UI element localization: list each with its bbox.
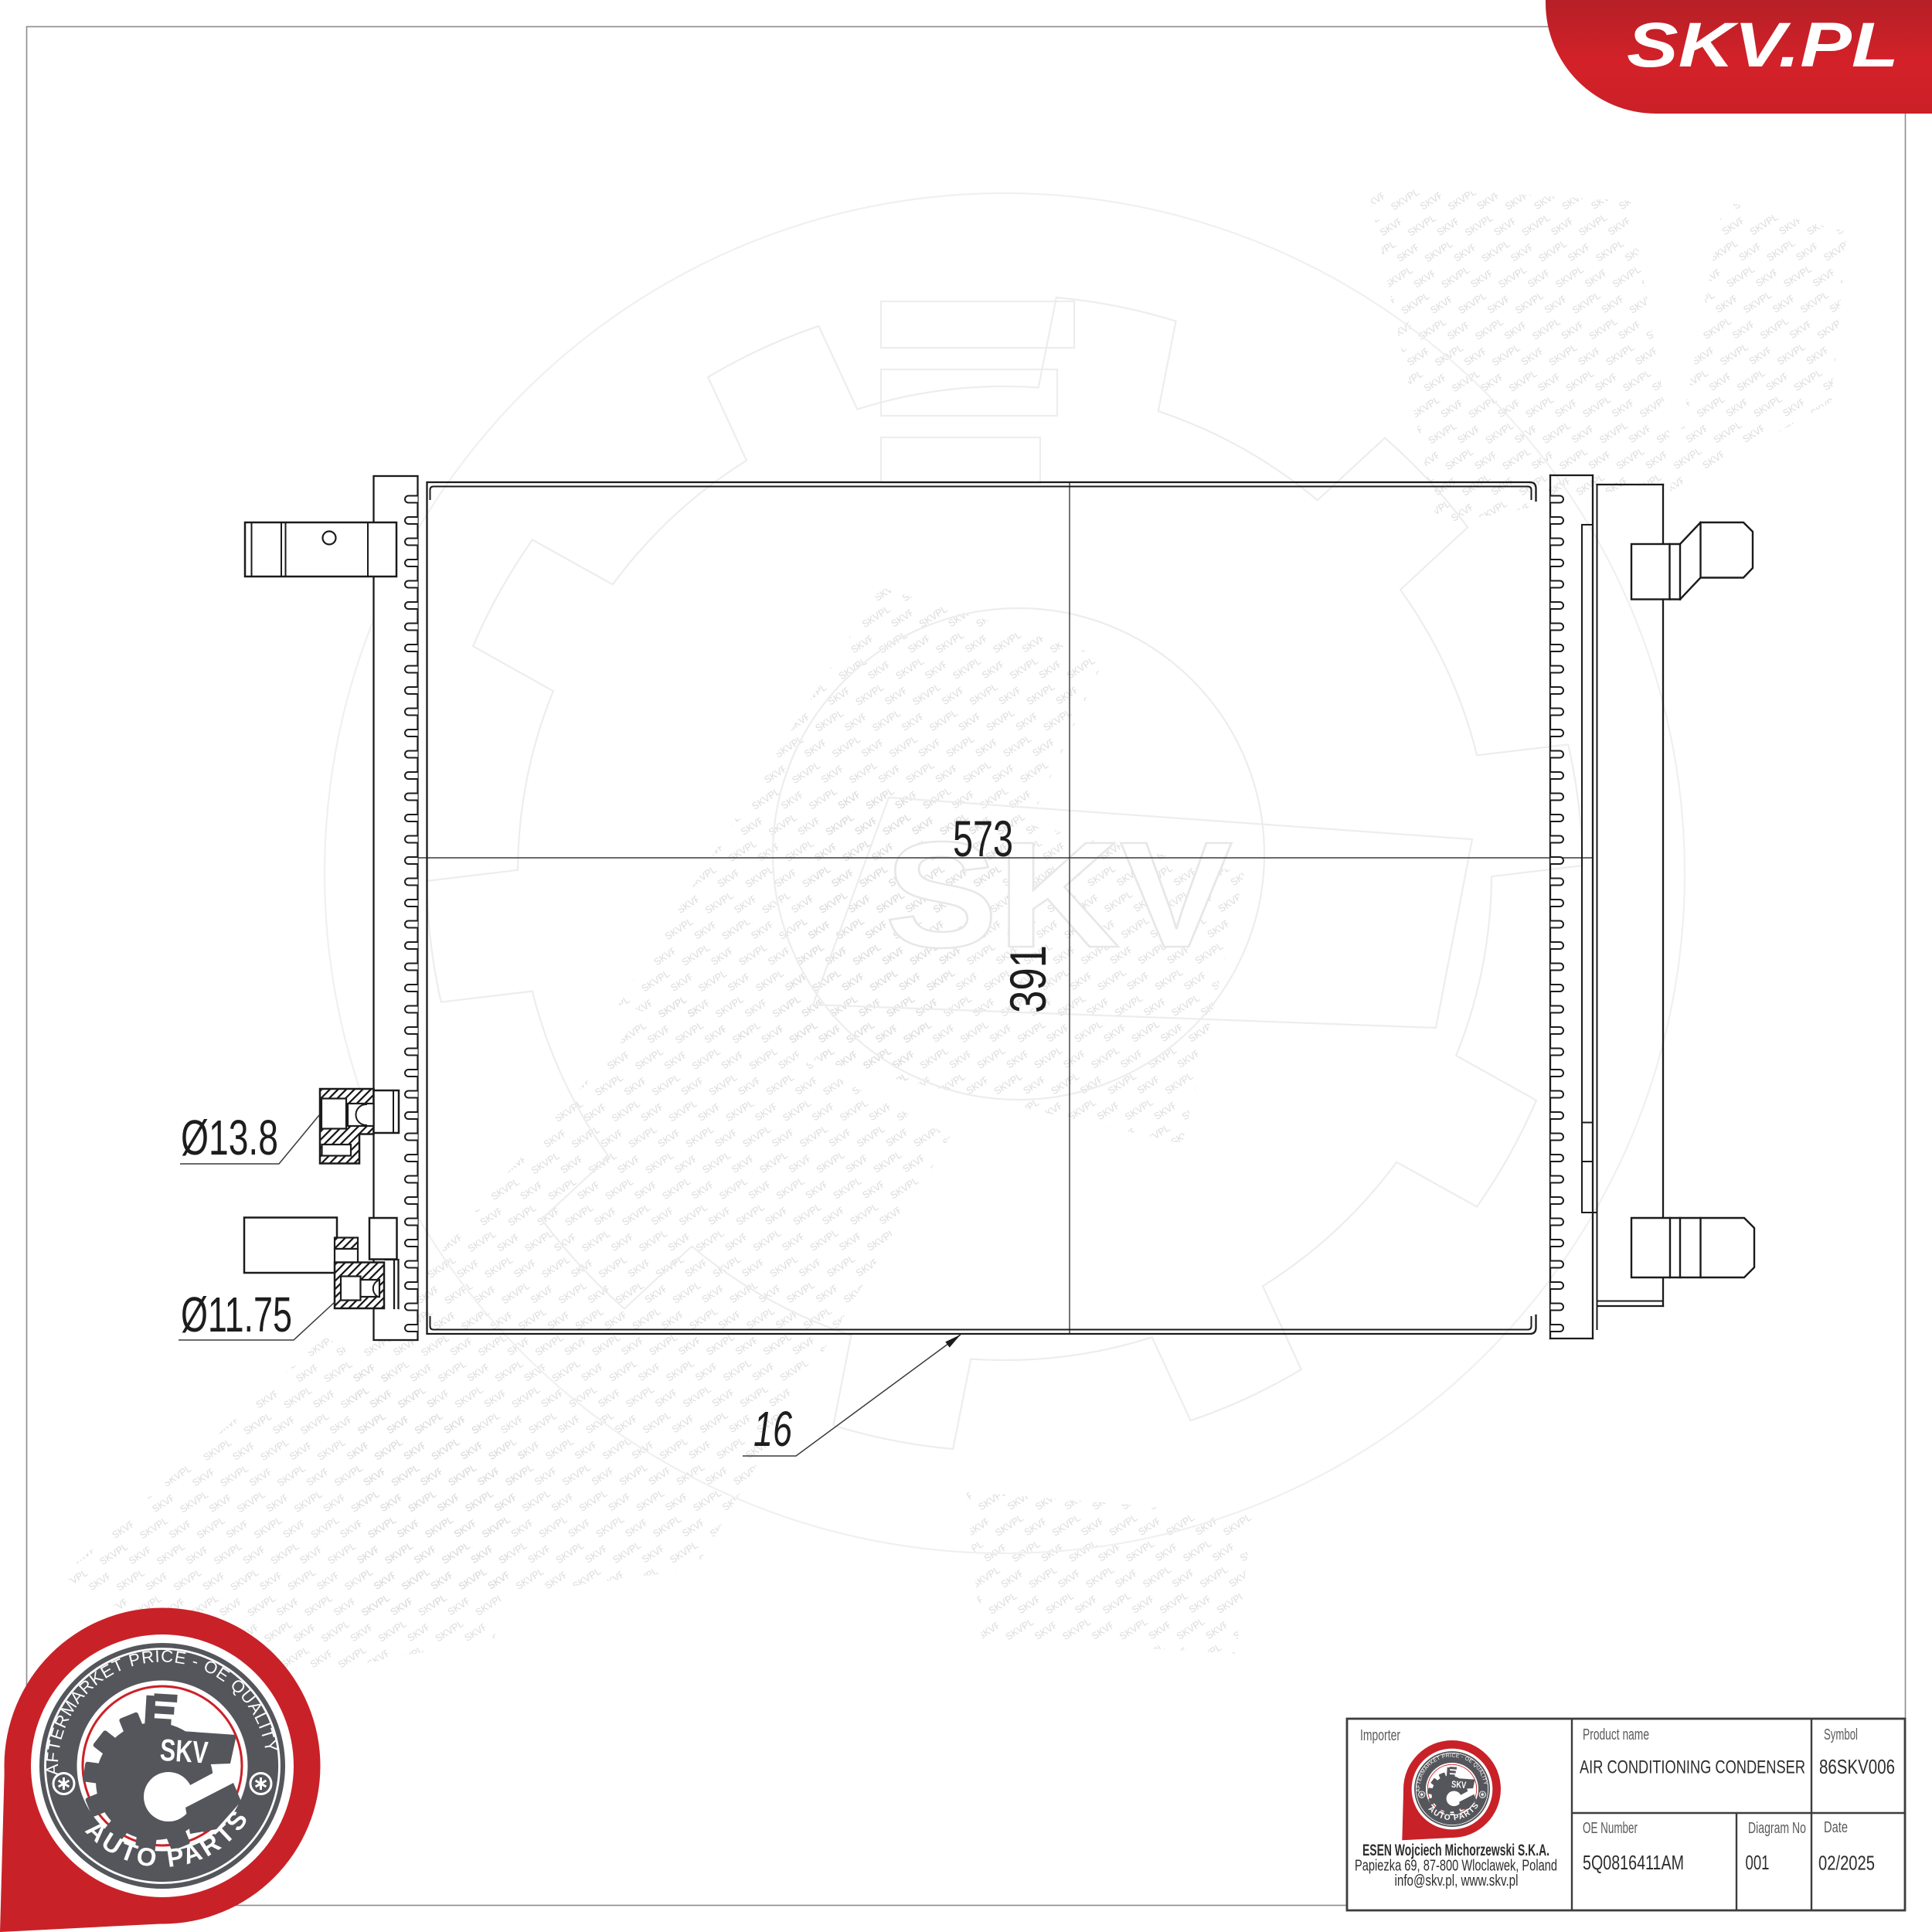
svg-text:Ø11.75: Ø11.75 bbox=[181, 1287, 292, 1342]
svg-text:573: 573 bbox=[953, 810, 1013, 867]
svg-text:Diagram No: Diagram No bbox=[1748, 1820, 1806, 1837]
svg-text:Product name: Product name bbox=[1583, 1726, 1649, 1743]
svg-text:Date: Date bbox=[1824, 1819, 1848, 1836]
svg-text:Importer: Importer bbox=[1360, 1727, 1400, 1744]
svg-text:5Q0816411AM: 5Q0816411AM bbox=[1583, 1851, 1684, 1874]
svg-text:Ø13.8: Ø13.8 bbox=[181, 1110, 278, 1165]
svg-text:86SKV006: 86SKV006 bbox=[1819, 1755, 1895, 1778]
svg-text:02/2025: 02/2025 bbox=[1818, 1852, 1875, 1875]
svg-text:info@skv.pl, www.skv.pl: info@skv.pl, www.skv.pl bbox=[1395, 1872, 1519, 1889]
svg-text:16: 16 bbox=[753, 1401, 792, 1457]
svg-text:OE Number: OE Number bbox=[1583, 1820, 1638, 1837]
svg-text:SKV.PL: SKV.PL bbox=[1627, 10, 1899, 80]
svg-text:Symbol: Symbol bbox=[1824, 1726, 1858, 1743]
svg-text:001: 001 bbox=[1746, 1851, 1770, 1874]
svg-text:AIR CONDITIONING CONDENSER: AIR CONDITIONING CONDENSER bbox=[1580, 1757, 1805, 1778]
svg-text:391: 391 bbox=[999, 945, 1056, 1013]
svg-text:SKV: SKV bbox=[885, 811, 1233, 979]
